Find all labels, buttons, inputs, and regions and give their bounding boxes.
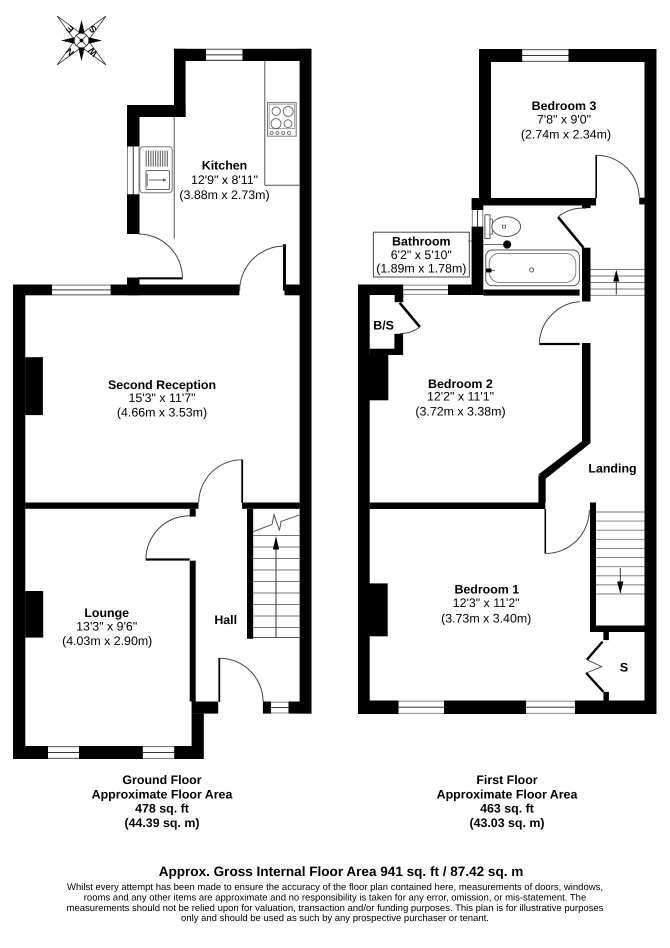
- svg-text:12'9" x 8'11": 12'9" x 8'11": [191, 173, 258, 187]
- svg-text:7'8" x 9'0": 7'8" x 9'0": [537, 113, 591, 127]
- svg-text:B/S: B/S: [373, 319, 394, 333]
- svg-text:6'2" x 5'10": 6'2" x 5'10": [391, 248, 452, 262]
- svg-text:Landing: Landing: [588, 461, 636, 475]
- svg-text:Ground Floor: Ground Floor: [122, 773, 201, 787]
- svg-text:Bathroom: Bathroom: [392, 234, 451, 248]
- svg-text:Hall: Hall: [214, 613, 237, 627]
- svg-text:Approx. Gross Internal Floor A: Approx. Gross Internal Floor Area 941 sq…: [159, 864, 524, 879]
- svg-text:measurements should not be rel: measurements should not be relied upon f…: [67, 903, 604, 914]
- svg-text:S: S: [620, 660, 628, 674]
- svg-text:13'3" x 9'6": 13'3" x 9'6": [76, 620, 137, 634]
- svg-text:Whilst every attempt has been: Whilst every attempt has been made to en…: [67, 882, 603, 893]
- svg-text:Approximate Floor Area: Approximate Floor Area: [437, 787, 578, 801]
- svg-text:478 sq. ft: 478 sq. ft: [135, 802, 189, 816]
- svg-text:12'2" x 11'1": 12'2" x 11'1": [427, 390, 494, 404]
- svg-text:(4.03m x 2.90m): (4.03m x 2.90m): [62, 634, 152, 648]
- svg-text:Lounge: Lounge: [84, 606, 129, 620]
- svg-text:(2.74m x 2.34m): (2.74m x 2.34m): [521, 127, 611, 141]
- svg-text:Kitchen: Kitchen: [202, 159, 247, 173]
- svg-text:rooms and any other items are: rooms and any other items are approximat…: [84, 892, 587, 903]
- svg-text:15'3" x 11'7": 15'3" x 11'7": [128, 391, 195, 405]
- svg-text:(3.88m x 2.73m): (3.88m x 2.73m): [179, 188, 269, 202]
- svg-text:Approximate Floor Area: Approximate Floor Area: [92, 787, 233, 801]
- svg-text:12'3" x 11'2": 12'3" x 11'2": [453, 596, 520, 610]
- svg-text:463 sq. ft: 463 sq. ft: [480, 802, 534, 816]
- svg-text:only and should be used as suc: only and should be used as such by any p…: [181, 913, 489, 924]
- svg-text:(4.66m x 3.53m): (4.66m x 3.53m): [117, 406, 207, 420]
- svg-text:Second Reception: Second Reception: [108, 378, 216, 392]
- svg-text:Bedroom 3: Bedroom 3: [532, 99, 597, 113]
- svg-text:First Floor: First Floor: [476, 773, 537, 787]
- svg-text:(3.72m x 3.38m): (3.72m x 3.38m): [415, 405, 505, 419]
- svg-text:(44.39 sq. m): (44.39 sq. m): [124, 816, 199, 830]
- svg-text:Bedroom 1: Bedroom 1: [454, 583, 519, 597]
- svg-text:(43.03 sq. m): (43.03 sq. m): [469, 816, 544, 830]
- svg-text:(1.89m x 1.78m): (1.89m x 1.78m): [376, 261, 466, 275]
- svg-text:(3.73m x 3.40m): (3.73m x 3.40m): [441, 611, 531, 625]
